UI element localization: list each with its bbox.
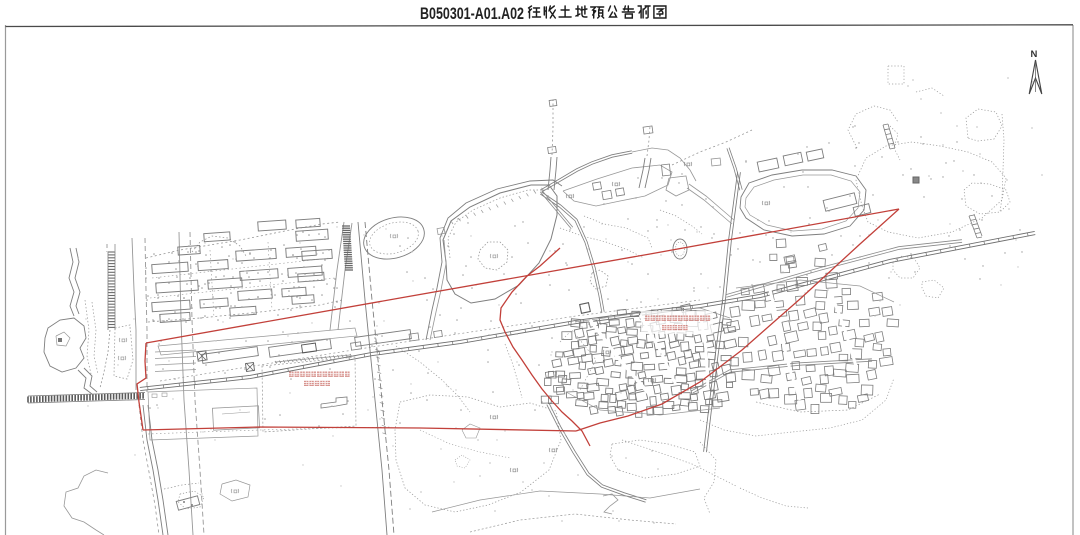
- svg-text:N: N: [1031, 49, 1038, 60]
- svg-text:B050301-A01.A02: B050301-A01.A02: [420, 4, 524, 23]
